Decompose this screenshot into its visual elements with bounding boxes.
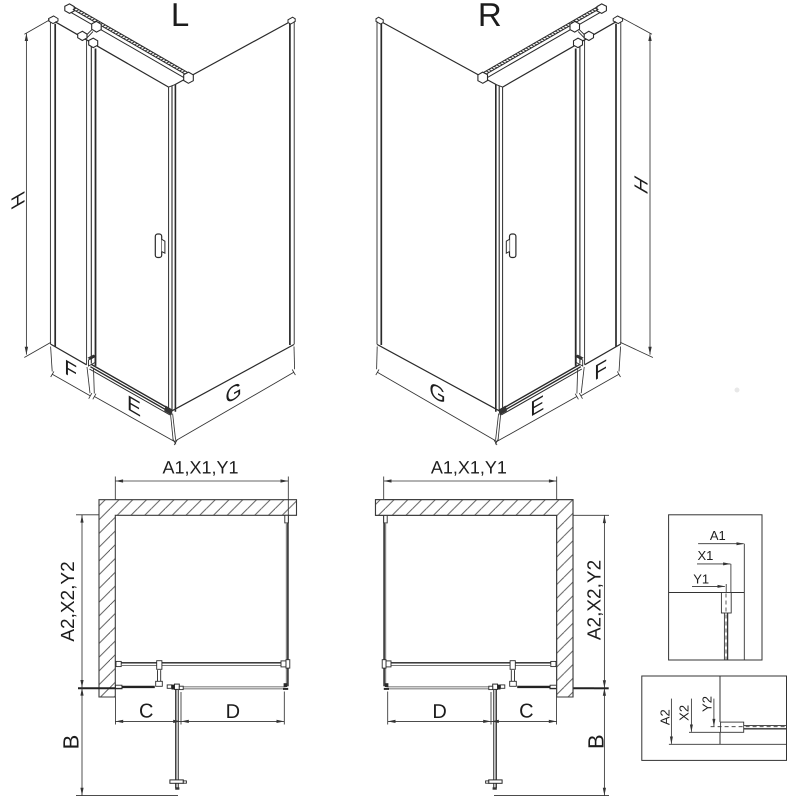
- svg-text:C: C: [139, 700, 153, 722]
- svg-text:A1,X1,Y1: A1,X1,Y1: [431, 458, 507, 478]
- svg-text:Y1: Y1: [693, 572, 709, 587]
- svg-text:A1,X1,Y1: A1,X1,Y1: [162, 458, 238, 478]
- svg-text:R: R: [478, 0, 502, 33]
- svg-text:X2: X2: [677, 705, 692, 721]
- svg-text:L: L: [171, 0, 189, 33]
- svg-text:B: B: [583, 734, 608, 749]
- svg-text:A2,X2,Y2: A2,X2,Y2: [58, 561, 79, 641]
- svg-text:D: D: [226, 701, 240, 723]
- svg-text:A1: A1: [710, 528, 726, 543]
- svg-text:B: B: [59, 735, 84, 750]
- svg-text:D: D: [432, 701, 446, 723]
- svg-text:A2,X2,Y2: A2,X2,Y2: [585, 560, 606, 640]
- svg-text:C: C: [519, 700, 533, 722]
- svg-text:X1: X1: [697, 548, 713, 563]
- svg-text:Y2: Y2: [700, 696, 715, 712]
- svg-text:A2: A2: [657, 709, 672, 725]
